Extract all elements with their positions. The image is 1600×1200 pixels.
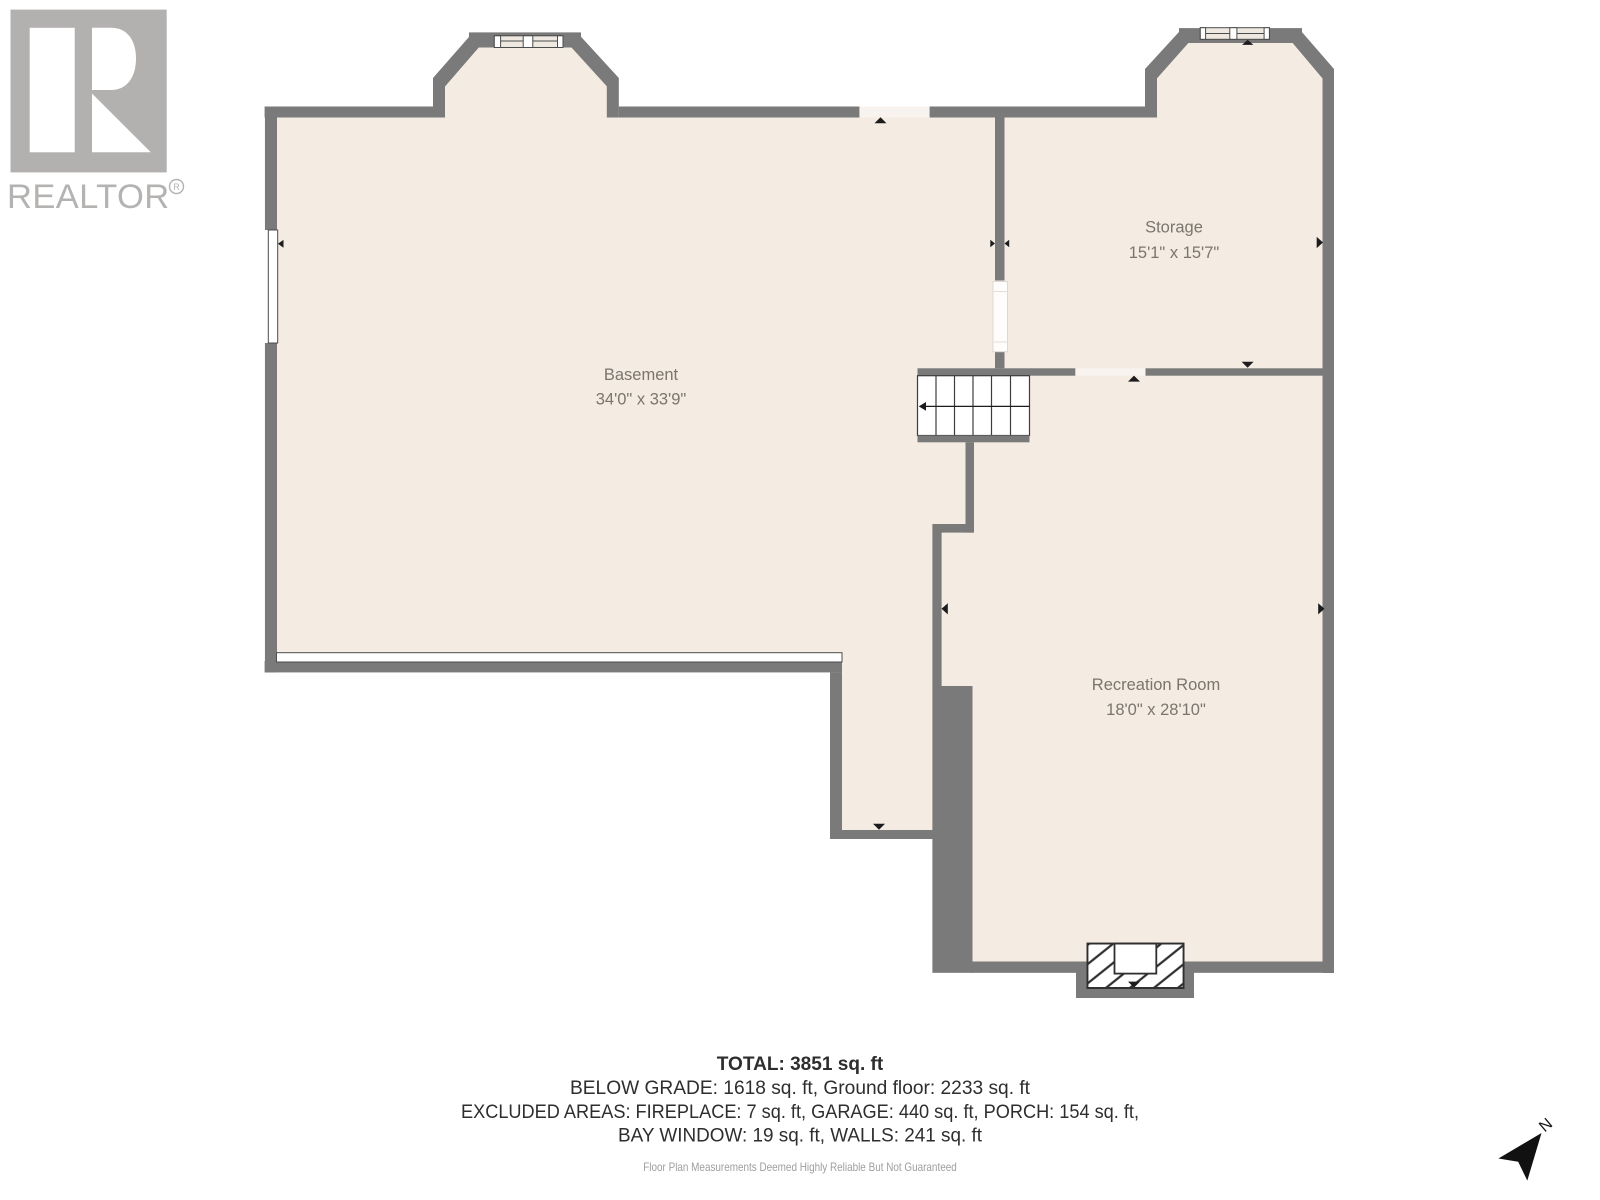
svg-text:18'0" x 28'10": 18'0" x 28'10" — [1106, 701, 1206, 719]
svg-text:BAY WINDOW: 19 sq. ft, WALLS:: BAY WINDOW: 19 sq. ft, WALLS: 241 sq. ft — [618, 1125, 983, 1147]
svg-text:Storage: Storage — [1145, 219, 1203, 237]
svg-text:R: R — [173, 182, 179, 192]
svg-text:TOTAL: 3851 sq. ft: TOTAL: 3851 sq. ft — [717, 1053, 884, 1075]
svg-text:REALTOR: REALTOR — [7, 178, 170, 216]
svg-text:34'0" x 33'9": 34'0" x 33'9" — [596, 391, 687, 409]
svg-text:Basement: Basement — [604, 366, 679, 384]
svg-text:15'1" x 15'7": 15'1" x 15'7" — [1129, 244, 1220, 262]
svg-text:Recreation Room: Recreation Room — [1092, 676, 1220, 694]
svg-text:BELOW GRADE: 1618 sq. ft, Grou: BELOW GRADE: 1618 sq. ft, Ground floor: … — [570, 1077, 1031, 1099]
svg-text:Floor Plan Measurements Deemed: Floor Plan Measurements Deemed Highly Re… — [643, 1160, 957, 1174]
svg-text:N: N — [1536, 1115, 1556, 1135]
svg-text:EXCLUDED AREAS: FIREPLACE: 7 s: EXCLUDED AREAS: FIREPLACE: 7 sq. ft, GAR… — [461, 1101, 1139, 1123]
